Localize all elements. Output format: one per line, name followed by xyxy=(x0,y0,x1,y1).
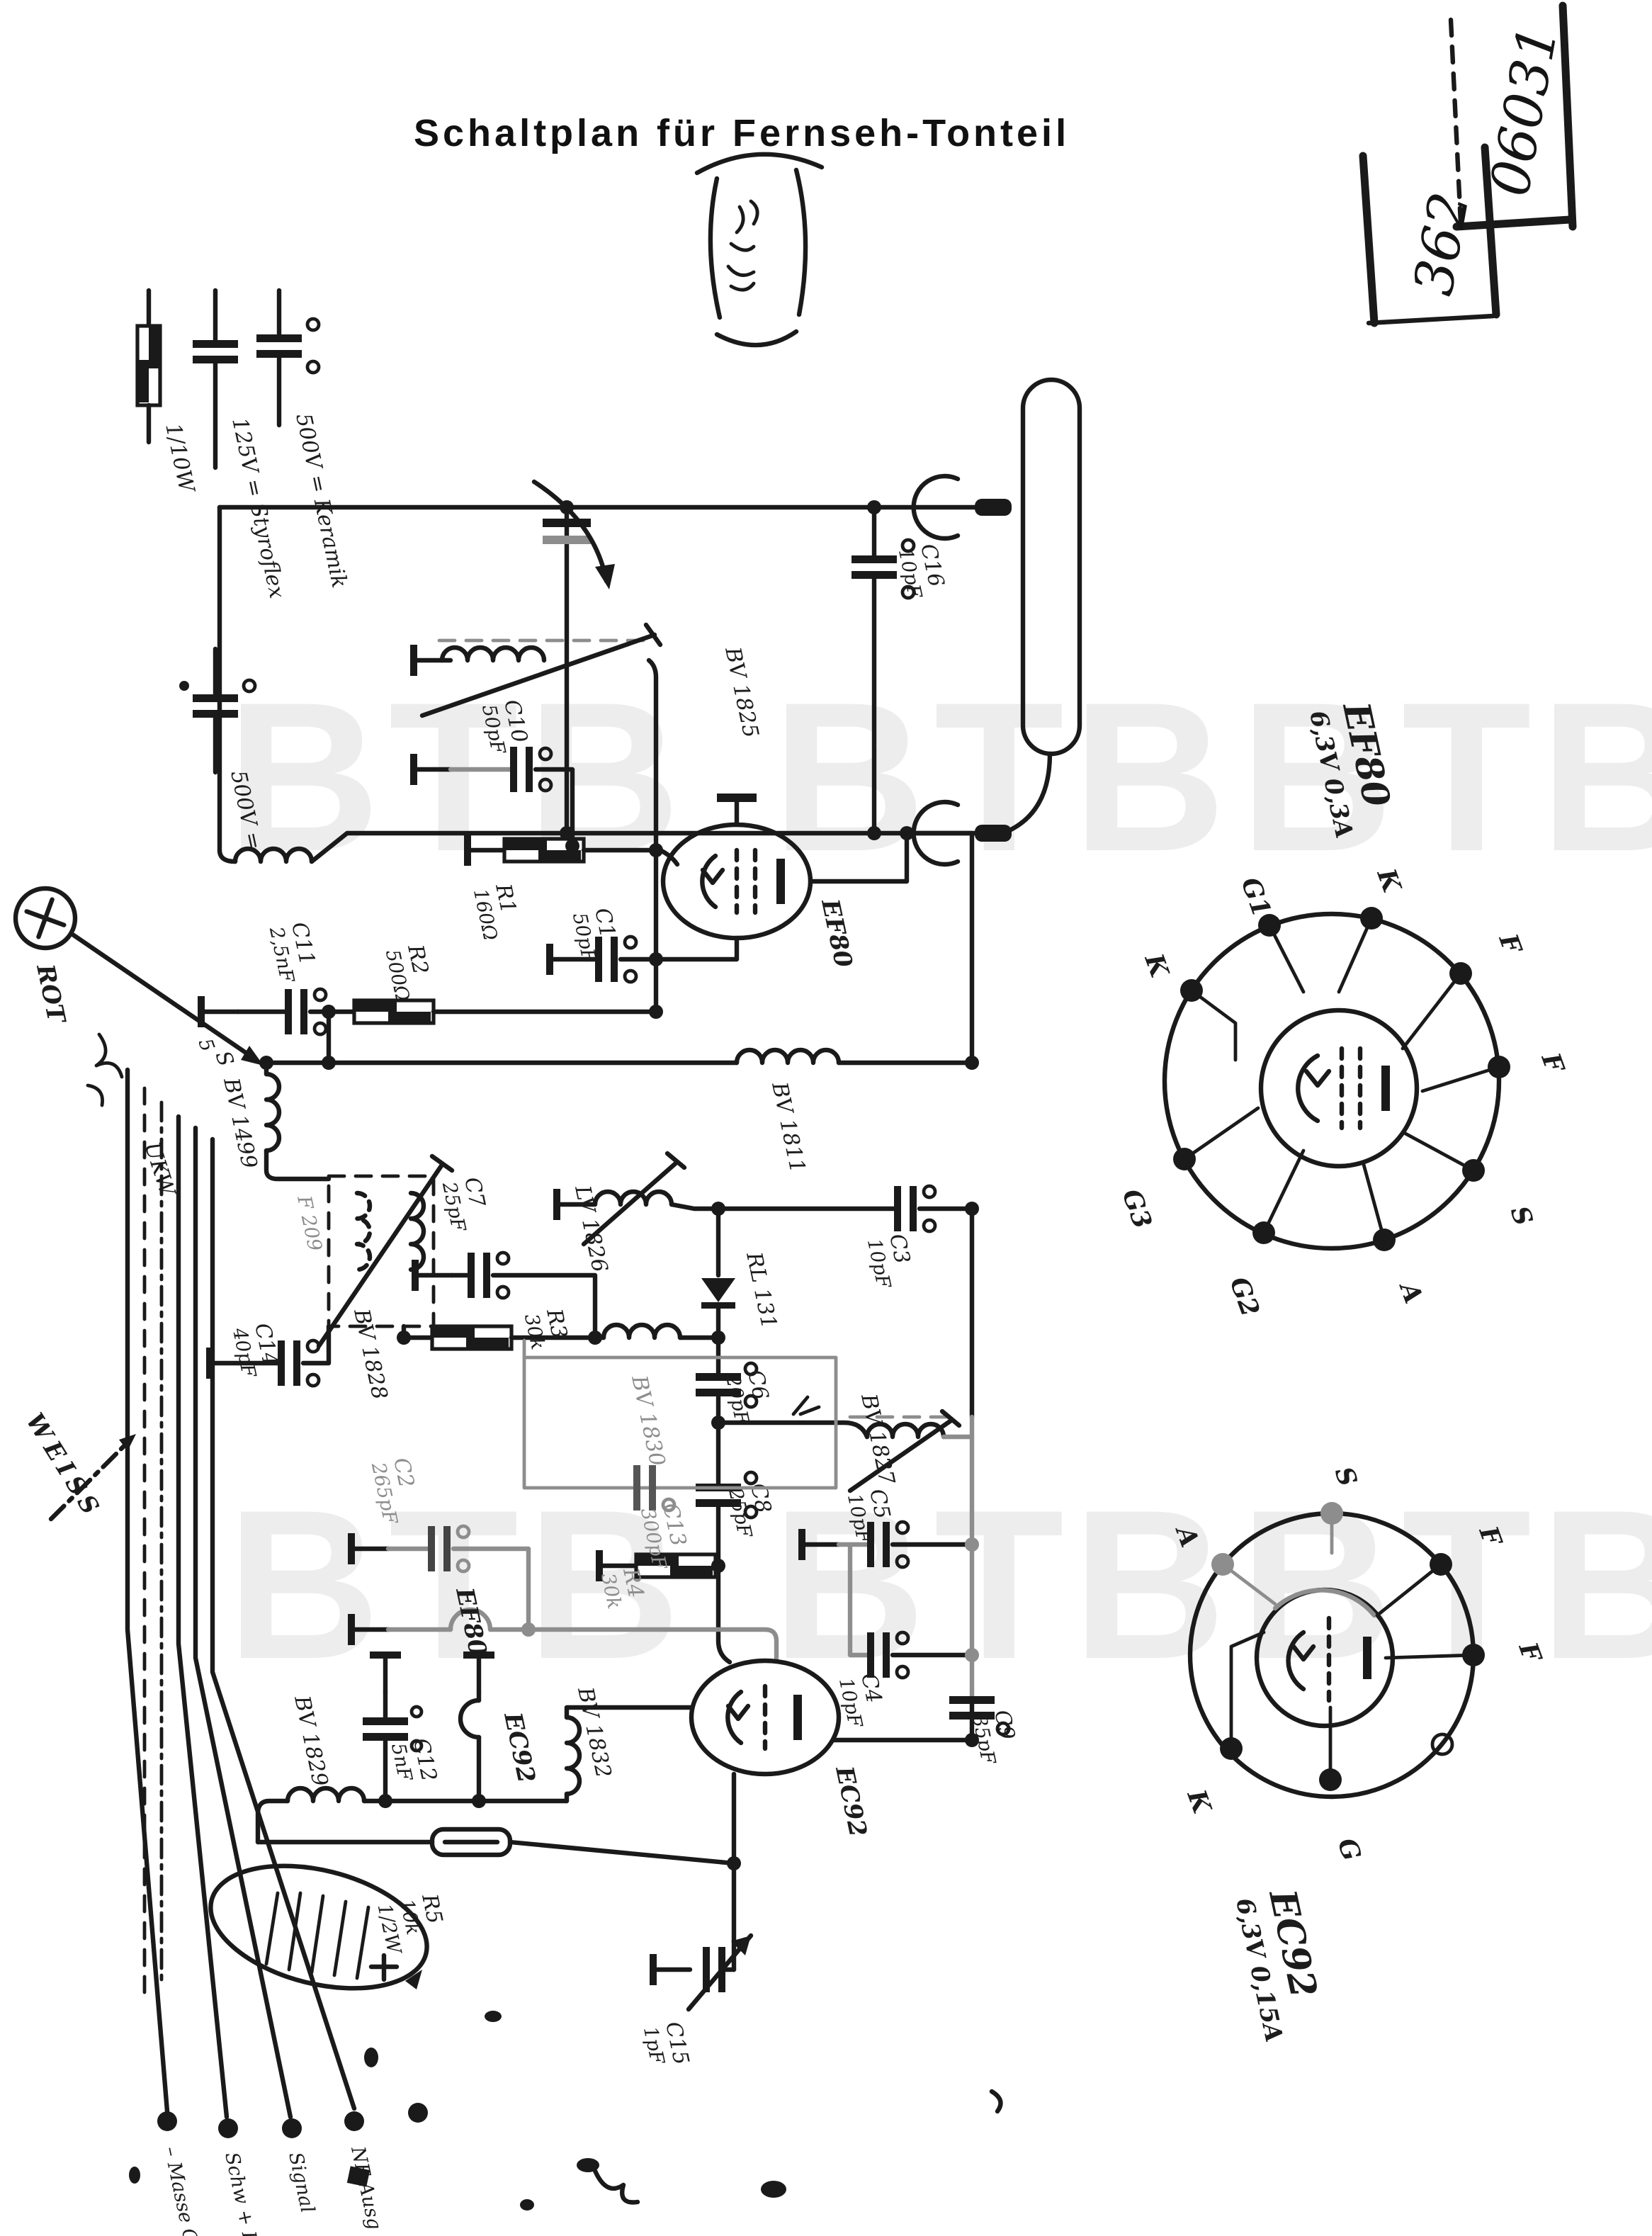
bv1830-coil: BV 1830 xyxy=(604,1325,718,1468)
legend-keramik-label: 500V = Keramik xyxy=(290,411,351,590)
schematic-scan-page: BTB BTB BTB BTB BTB BTB Schaltplan für F… xyxy=(0,0,1652,2236)
page-title: Schaltplan für Fernseh-Tonteil xyxy=(414,112,1070,154)
output-terminals: – Masse G Schw + H Signal NF Ausg xyxy=(157,2103,428,2236)
rl131-diode: RL 131 xyxy=(701,1209,781,1338)
weiss-wire-marker: WEISS xyxy=(20,1408,136,1525)
label-ec92-heater: EC92 xyxy=(498,1710,541,1785)
label-bv1811: BV 1811 xyxy=(766,1079,810,1175)
label-ef80-tube: EF80 xyxy=(815,896,858,971)
watermark-text: BTB xyxy=(772,657,1235,896)
terminal-label-masse: – Masse G xyxy=(159,2145,201,2236)
rot-wire-marker: ROT xyxy=(16,888,264,1066)
label-bv1499: BV 1499 xyxy=(218,1075,261,1170)
c15-trimmer: C15 1pF xyxy=(639,1936,751,2072)
ef80-pin-f2: F xyxy=(1535,1049,1570,1078)
ef80-pin-g2: G2 xyxy=(1224,1273,1266,1321)
label-bv1825: BV 1825 xyxy=(720,644,763,740)
label-bv1829: BV 1829 xyxy=(289,1693,332,1788)
ef80-pin-a: A xyxy=(1393,1277,1429,1307)
watermark-text: BTB xyxy=(1240,657,1652,896)
label-ec92-tube: EC92 xyxy=(830,1763,872,1839)
c14-cap: C14 40pF xyxy=(206,1320,329,1386)
watermark-text: BTB xyxy=(1240,1465,1652,1703)
c1-cathode-cap: C1 50pF xyxy=(546,905,737,982)
stamp-number-upper: 06031 xyxy=(1451,6,1573,227)
annotation-five: 5 xyxy=(193,1036,218,1055)
r5-fuse: R5 10k 1/2W xyxy=(258,1829,734,1958)
stamp-number-lower-text: 362 xyxy=(1401,188,1481,300)
stamp-number-lower: 362 xyxy=(1363,147,1496,323)
label-f209: F 209 xyxy=(293,1193,326,1253)
lv1826-trimmer: LV 1826 xyxy=(553,1153,718,1275)
stamp-number-upper-text: 06031 xyxy=(1478,21,1570,201)
label-lv1826: LV 1826 xyxy=(570,1182,612,1274)
ef80-pin-g3: G3 xyxy=(1116,1185,1158,1233)
terminal-label-nf: NF Ausg xyxy=(346,2144,385,2232)
ink-specks xyxy=(129,1955,1001,2210)
watermark-text: BTB xyxy=(227,657,689,896)
annotation-s: S xyxy=(210,1048,238,1070)
watermark-text: BTB xyxy=(772,1465,1235,1703)
label-rot: ROT xyxy=(30,961,71,1027)
ec92-pin-g: G xyxy=(1332,1834,1367,1865)
label-bv1830: BV 1830 xyxy=(626,1372,669,1468)
legend-resistor-label: 1/10W xyxy=(160,421,199,495)
handwritten-stamp xyxy=(697,154,822,345)
label-bv1828: BV 1828 xyxy=(349,1306,392,1401)
terminal-label-schw: Schw + H xyxy=(220,2150,262,2236)
ef80-pin-f1: F xyxy=(1493,930,1527,959)
label-rl131: RL 131 xyxy=(741,1249,781,1331)
ef80-pin-k1: K xyxy=(1138,949,1175,982)
terminal-label-signal: Signal xyxy=(284,2150,318,2215)
ef80-pin-s: S xyxy=(1505,1202,1539,1230)
ec92-pin-k: K xyxy=(1181,1785,1217,1818)
